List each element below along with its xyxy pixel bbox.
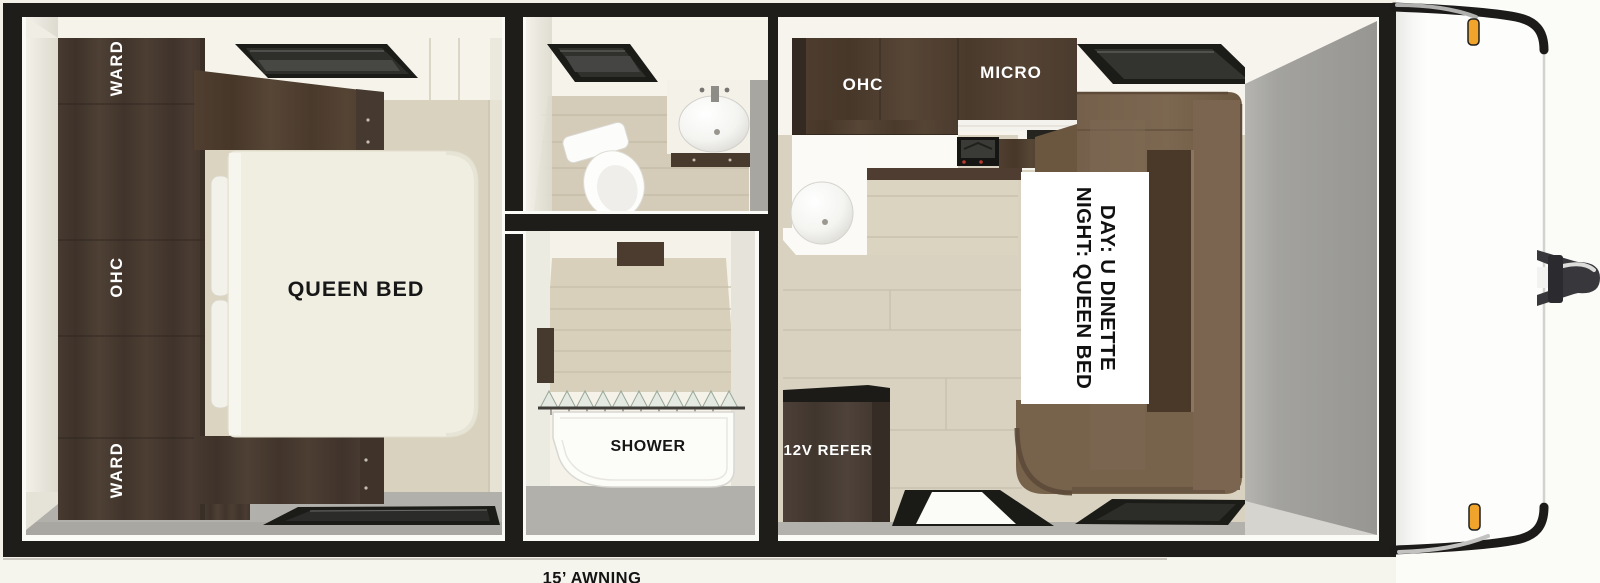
svg-text:QUEEN BED: QUEEN BED	[288, 277, 425, 301]
svg-text:MICRO: MICRO	[980, 63, 1042, 82]
svg-text:DAY: U DINETTE: DAY: U DINETTE	[1096, 205, 1119, 371]
svg-text:NIGHT: QUEEN BED: NIGHT: QUEEN BED	[1072, 187, 1095, 389]
svg-text:12V REFER: 12V REFER	[784, 442, 873, 459]
svg-text:OHC: OHC	[108, 256, 126, 297]
svg-text:15’ AWNING: 15’ AWNING	[543, 570, 642, 583]
svg-text:OHC: OHC	[843, 75, 884, 94]
svg-text:WARD: WARD	[108, 40, 126, 96]
svg-text:SHOWER: SHOWER	[611, 438, 686, 455]
svg-text:WARD: WARD	[108, 442, 126, 498]
